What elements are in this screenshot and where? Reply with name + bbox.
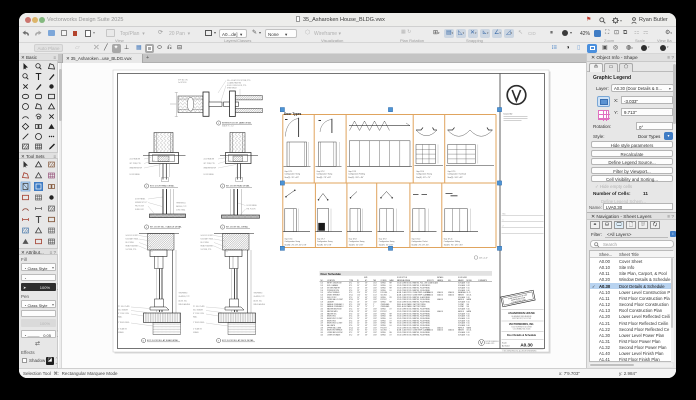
- svg-text:BEDROOM 2: BEDROOM 2: [327, 316, 336, 318]
- svg-text:Configuration: Overhead: Configuration: Overhead: [448, 173, 466, 176]
- svg-text:F-10: F-10: [467, 313, 470, 315]
- svg-text:BLOCKING: BLOCKING: [201, 242, 210, 244]
- svg-text:F-40: F-40: [467, 290, 470, 292]
- svg-text:DT-6: DT-6: [349, 302, 352, 304]
- svg-text:F-40: F-40: [467, 316, 470, 318]
- svg-text:2" RIGID INSUL.: 2" RIGID INSUL.: [193, 322, 205, 324]
- svg-text:LH: LH: [390, 334, 392, 336]
- svg-text:F-10: F-10: [467, 323, 470, 325]
- svg-text:1 3/8": 1 3/8": [373, 334, 377, 336]
- svg-text:109: 109: [321, 302, 324, 304]
- svg-text:2: 2: [503, 226, 504, 228]
- svg-text:SWING: SWING: [381, 316, 387, 318]
- svg-text:DT-11: DT-11: [349, 294, 353, 296]
- svg-text:F-10: F-10: [467, 318, 470, 320]
- svg-text:1 3/8": 1 3/8": [373, 287, 377, 289]
- svg-text:Configuration: Swing: Configuration: Swing: [317, 173, 333, 176]
- svg-text:103: 103: [321, 287, 324, 289]
- svg-text:F-58: F-58: [467, 285, 470, 287]
- svg-text:002: 002: [321, 334, 324, 336]
- svg-text:DT-4: DT-4: [349, 306, 352, 308]
- svg-text:Size(R): 20'0" x 8'0": Size(R): 20'0" x 8'0": [348, 177, 364, 179]
- svg-text:UNDERCUT 1/2": UNDERCUT 1/2": [135, 202, 148, 204]
- svg-text:Issued for:: Issued for:: [504, 114, 514, 116]
- svg-text:VECTORWORKS, INC.: VECTORWORKS, INC.: [509, 323, 534, 326]
- svg-text:SWING: SWING: [381, 313, 387, 315]
- svg-text:Scale:: Scale:: [502, 343, 507, 345]
- svg-text:BEDROOM 3: BEDROOM 3: [327, 320, 336, 322]
- svg-text:Configuration: Swing: Configuration: Swing: [285, 240, 301, 243]
- svg-text:DT-1: DT-1: [349, 285, 352, 287]
- svg-text:INT. DOOR SILL / SADDLE DETAIL: INT. DOOR SILL / SADDLE DETAIL: [150, 225, 183, 228]
- svg-text:12'0": 12'0": [357, 294, 361, 296]
- svg-text:INTERIOR DOOR JAMB DETAIL: INTERIOR DOOR JAMB DETAIL: [222, 121, 252, 124]
- svg-text:F-10: F-10: [467, 334, 470, 336]
- svg-text:204: 204: [321, 316, 324, 318]
- svg-text:5/4 TRIM, PTD.: 5/4 TRIM, PTD.: [201, 249, 213, 251]
- svg-text:DT-3: DT-3: [349, 292, 352, 294]
- svg-text:DT-5: DT-5: [349, 304, 352, 306]
- svg-text:209: 209: [321, 327, 324, 329]
- svg-text:RH: RH: [390, 283, 392, 285]
- svg-text:1 3/8": 1 3/8": [373, 320, 377, 322]
- svg-text:COLUMBIA, MD 21046: COLUMBIA, MD 21046: [513, 328, 531, 331]
- svg-text:Size(R): 2'6", 2'8", 3'0",: Size(R): 2'6", 2'8", 3'0",: [412, 244, 430, 246]
- svg-text:F-10: F-10: [467, 287, 470, 289]
- svg-text:102: 102: [321, 285, 324, 287]
- svg-text:As Noted: As Noted: [502, 345, 509, 348]
- svg-text:FIN. FLOOR: FIN. FLOOR: [247, 209, 257, 211]
- svg-text:INT. TRIM, PTD.: INT. TRIM, PTD.: [204, 163, 216, 165]
- svg-text:DT-11: DT-11: [349, 330, 353, 332]
- svg-text:SLIDING: SLIDING: [381, 294, 388, 296]
- svg-text:POCKET: POCKET: [381, 327, 387, 329]
- svg-text:INT. DOOR SILL DETAIL: INT. DOOR SILL DETAIL: [226, 225, 249, 228]
- svg-text:1 3/8": 1 3/8": [373, 316, 377, 318]
- svg-text:EXT. DOOR HEAD DETAIL: EXT. DOOR HEAD DETAIL: [150, 184, 175, 187]
- svg-text:LH: LH: [390, 285, 392, 287]
- svg-text:SLIDING: SLIDING: [381, 330, 388, 332]
- svg-text:1 3/8": 1 3/8": [373, 332, 377, 334]
- svg-text:DT-10: DT-10: [349, 299, 353, 301]
- svg-text:SWING: SWING: [381, 287, 387, 289]
- svg-text:Configuration: Pocket: Configuration: Pocket: [412, 240, 429, 243]
- svg-text:FOLDING: FOLDING: [381, 292, 389, 294]
- svg-text:F-10: F-10: [467, 332, 470, 334]
- svg-text:Configuration: Swing: Configuration: Swing: [349, 240, 365, 243]
- svg-text:DT-8: DT-8: [349, 318, 352, 320]
- svg-text:F-40: F-40: [467, 309, 470, 311]
- svg-text:LH: LH: [390, 309, 392, 311]
- svg-text:ULT-SL: ULT-SL: [467, 330, 472, 332]
- svg-text:206: 206: [321, 320, 324, 322]
- svg-text:1 3/4": 1 3/4": [373, 283, 377, 285]
- svg-text:TEMPERED: TEMPERED: [254, 292, 264, 294]
- svg-text:108: 108: [321, 299, 324, 301]
- svg-text:ULT-SL: ULT-SL: [467, 294, 472, 296]
- svg-text:SWING: SWING: [381, 285, 387, 287]
- svg-text:RH: RH: [390, 287, 392, 289]
- svg-text:2x10 FLR JOISTS: 2x10 FLR JOISTS: [201, 235, 214, 237]
- svg-text:F-10: F-10: [467, 297, 470, 299]
- svg-text:1 3/8": 1 3/8": [373, 299, 377, 301]
- svg-text:Configuration: Swing: Configuration: Swing: [379, 240, 395, 243]
- svg-text:RH: RH: [390, 332, 392, 334]
- svg-text:FIN. FLOOR: FIN. FLOOR: [135, 206, 145, 208]
- svg-text:1 3/8": 1 3/8": [373, 297, 377, 299]
- svg-text:8" CONC. FDN.: 8" CONC. FDN.: [193, 313, 205, 315]
- svg-text:DOOR SCHEDULE: DOOR SCHEDULE: [486, 341, 499, 343]
- svg-text:2x10 FLR JOISTS: 2x10 FLR JOISTS: [126, 235, 139, 237]
- svg-text:LOWER MECH ROOM: LOWER MECH ROOM: [327, 332, 343, 334]
- svg-text:DT-2: DT-2: [349, 334, 352, 336]
- svg-text:F-40: F-40: [467, 325, 470, 327]
- svg-text:Size(R): 9'0", 12'0" x 8'0": Size(R): 9'0", 12'0" x 8'0": [444, 244, 463, 246]
- svg-text:SOLID CORE DOOR, PTD.: SOLID CORE DOOR, PTD.: [227, 85, 247, 87]
- svg-text:INT. TRIM, PTD.: INT. TRIM, PTD.: [130, 163, 142, 165]
- svg-text:DT-6: DT-6: [349, 309, 352, 311]
- svg-text:1 3/8": 1 3/8": [373, 309, 377, 311]
- svg-text:SWING: SWING: [381, 283, 387, 285]
- svg-text:BEDROOM 2 CLOSET: BEDROOM 2 CLOSET: [327, 318, 343, 320]
- svg-text:RH: RH: [390, 316, 392, 318]
- svg-text:BLOCKING: BLOCKING: [126, 242, 135, 244]
- svg-text:GYP. BD. ON: GYP. BD. ON: [178, 80, 188, 82]
- svg-text:Size(R): 16'0" x 8'0": Size(R): 16'0" x 8'0": [448, 177, 464, 179]
- svg-text:SWING: SWING: [381, 332, 387, 334]
- svg-text:Configuration: Swing: Configuration: Swing: [317, 240, 333, 243]
- svg-text:1 3/8": 1 3/8": [373, 290, 377, 292]
- svg-text:2" RIGID INSUL.: 2" RIGID INSUL.: [118, 322, 130, 324]
- svg-text:DOOR STYLE: DOOR STYLE: [397, 277, 407, 279]
- svg-text:110: 110: [321, 304, 324, 306]
- svg-text:205: 205: [321, 318, 324, 320]
- svg-text:LH: LH: [390, 325, 392, 327]
- svg-text:Configuration: Sliding: Configuration: Sliding: [444, 240, 460, 243]
- svg-text:DT-10: DT-10: [349, 311, 353, 313]
- svg-text:SWING: SWING: [381, 297, 387, 299]
- svg-text:208: 208: [321, 325, 324, 327]
- svg-text:POWDER ROOM: POWDER ROOM: [327, 290, 340, 292]
- svg-text:LH: LH: [390, 318, 392, 320]
- svg-text:Size(R): 2'8" x 6'8": Size(R): 2'8" x 6'8": [317, 177, 332, 179]
- svg-text:1: 1: [503, 220, 504, 222]
- svg-text:8" CONC. FDN.: 8" CONC. FDN.: [118, 313, 130, 315]
- svg-text:DT-10: DT-10: [349, 327, 353, 329]
- svg-text:1 3/4": 1 3/4": [373, 285, 377, 287]
- svg-text:203: 203: [321, 313, 324, 315]
- svg-text:SL-70: SL-70: [467, 292, 471, 294]
- svg-text:104: 104: [321, 290, 324, 292]
- svg-text:2 1/4": 2 1/4": [373, 292, 377, 294]
- svg-text:RH: RH: [390, 313, 392, 315]
- svg-text:1 3/8": 1 3/8": [373, 313, 377, 315]
- svg-text:DT-8: DT-8: [349, 313, 352, 315]
- svg-text:Size(R): 2'4" x 6'8": Size(R): 2'4" x 6'8": [349, 244, 364, 246]
- svg-text:1 3/8": 1 3/8": [373, 302, 377, 304]
- svg-text:INT. DOOR HEAD DETAIL: INT. DOOR HEAD DETAIL: [226, 184, 251, 187]
- svg-text:16'0": 16'0": [357, 304, 361, 306]
- svg-text:201: 201: [321, 309, 324, 311]
- svg-text:THRESHOLD: THRESHOLD: [176, 203, 187, 205]
- svg-text:DT-6: DT-6: [349, 325, 352, 327]
- svg-text:DT-6: DT-6: [349, 320, 352, 322]
- svg-text:1 3/8": 1 3/8": [373, 311, 377, 313]
- svg-text:POCKET: POCKET: [381, 299, 387, 301]
- svg-text:5/4 TRIM, PTD.: 5/4 TRIM, PTD.: [126, 249, 138, 251]
- svg-text:LH: LH: [390, 320, 392, 322]
- svg-text:A0.30: A0.30: [520, 343, 533, 348]
- svg-text:SWING: SWING: [381, 318, 387, 320]
- svg-text:107: 107: [321, 297, 324, 299]
- svg-text:111: 111: [321, 306, 323, 308]
- svg-text:Door Details & Schedule: Door Details & Schedule: [507, 334, 537, 337]
- svg-text:1 3/8": 1 3/8": [373, 318, 377, 320]
- svg-text:Configuration: Swing: Configuration: Swing: [416, 173, 432, 176]
- svg-text:DT-7: DT-7: [349, 287, 352, 289]
- svg-text:1 3/8": 1 3/8": [373, 327, 377, 329]
- svg-text:1 3/8": 1 3/8": [373, 323, 377, 325]
- svg-text:DOOR HDW: DOOR HDW: [458, 277, 467, 279]
- svg-text:DT-8: DT-8: [349, 323, 352, 325]
- svg-text:Size(R): 3'0" x 6'8": Size(R): 3'0" x 6'8": [285, 177, 300, 179]
- svg-text:Size(R): 2'6", 2'8", 3'0" x 6: Size(R): 2'6", 2'8", 3'0" x 6'8": [285, 244, 307, 246]
- svg-text:SWING: SWING: [381, 325, 387, 327]
- svg-text:DEN / STUDY: DEN / STUDY: [327, 297, 337, 299]
- svg-text:RH: RH: [390, 302, 392, 304]
- svg-text:ASHAROKEN HOUSE: ASHAROKEN HOUSE: [508, 311, 535, 315]
- svg-text:SWING: SWING: [381, 320, 387, 322]
- svg-text:SWING: SWING: [381, 323, 387, 325]
- svg-text:SUBFLOOR: SUBFLOOR: [135, 209, 145, 211]
- svg-text:105: 105: [321, 292, 324, 294]
- svg-text:Door Types: Door Types: [284, 112, 302, 116]
- svg-text:POCKET: POCKET: [381, 311, 387, 313]
- svg-text:BEDROOM 3 CLOSET: BEDROOM 3 CLOSET: [327, 323, 343, 325]
- svg-text:DT-9: DT-9: [349, 297, 352, 299]
- svg-text:20'0": 20'0": [357, 292, 361, 294]
- svg-text:EXT. DOOR SILL AT SLAB DETAIL: EXT. DOOR SILL AT SLAB DETAIL: [147, 339, 179, 342]
- svg-text:Door Schedule: Door Schedule: [321, 272, 342, 276]
- svg-text:SWING: SWING: [381, 334, 387, 336]
- svg-text:Rev: Rev: [503, 214, 506, 216]
- svg-text:2 1/4": 2 1/4": [373, 294, 377, 296]
- svg-text:DT-6: DT-6: [349, 316, 352, 318]
- svg-text:2x4 STUDS: 2x4 STUDS: [178, 82, 186, 84]
- svg-text:Size(R): 5'0" x 6'8": Size(R): 5'0" x 6'8": [379, 244, 394, 246]
- svg-text:001: 001: [321, 332, 324, 334]
- svg-text:202: 202: [321, 311, 324, 313]
- svg-text:207: 207: [321, 323, 324, 325]
- svg-text:LH: LH: [390, 290, 392, 292]
- svg-text:Configuration: Swing: Configuration: Swing: [285, 173, 301, 176]
- svg-text:DT-6: DT-6: [349, 290, 352, 292]
- svg-text:210: 210: [321, 330, 324, 332]
- svg-text:904: 904: [467, 304, 470, 306]
- svg-text:F-10: F-10: [467, 302, 470, 304]
- svg-text:904: 904: [467, 306, 470, 308]
- svg-text:2 1/4": 2 1/4": [373, 330, 377, 332]
- svg-text:Size(R): 8'0" x 7'0": Size(R): 8'0" x 7'0": [416, 177, 431, 179]
- svg-text:101: 101: [321, 283, 324, 285]
- svg-text:1/4" = 1'-0": 1/4" = 1'-0": [479, 258, 488, 260]
- svg-text:NORTHPORT, NY 11768: NORTHPORT, NY 11768: [512, 318, 531, 320]
- svg-text:RH: RH: [390, 323, 392, 325]
- svg-text:F-58: F-58: [467, 283, 470, 285]
- svg-text:ENTRY / MUDROOM: ENTRY / MUDROOM: [327, 283, 342, 285]
- svg-text:SWING: SWING: [381, 290, 387, 292]
- svg-text:1 3/8": 1 3/8": [373, 325, 377, 327]
- svg-text:F-40: F-40: [467, 320, 470, 322]
- svg-text:106: 106: [321, 294, 324, 296]
- svg-text:DT-1: DT-1: [349, 283, 352, 285]
- svg-text:TEMPERED: TEMPERED: [179, 292, 189, 294]
- svg-text:SWING: SWING: [381, 309, 387, 311]
- svg-text:Size(R): 3'0" x 6'8": Size(R): 3'0" x 6'8": [317, 244, 332, 246]
- svg-text:SWING: SWING: [381, 302, 387, 304]
- svg-text:EXT. DOOR SILL AT DECK DETAIL: EXT. DOOR SILL AT DECK DETAIL: [222, 339, 255, 342]
- svg-text:DT-2: DT-2: [349, 332, 352, 334]
- svg-text:SIZE: SIZE: [364, 277, 367, 279]
- svg-text:Configuration: Folding: Configuration: Folding: [348, 173, 365, 176]
